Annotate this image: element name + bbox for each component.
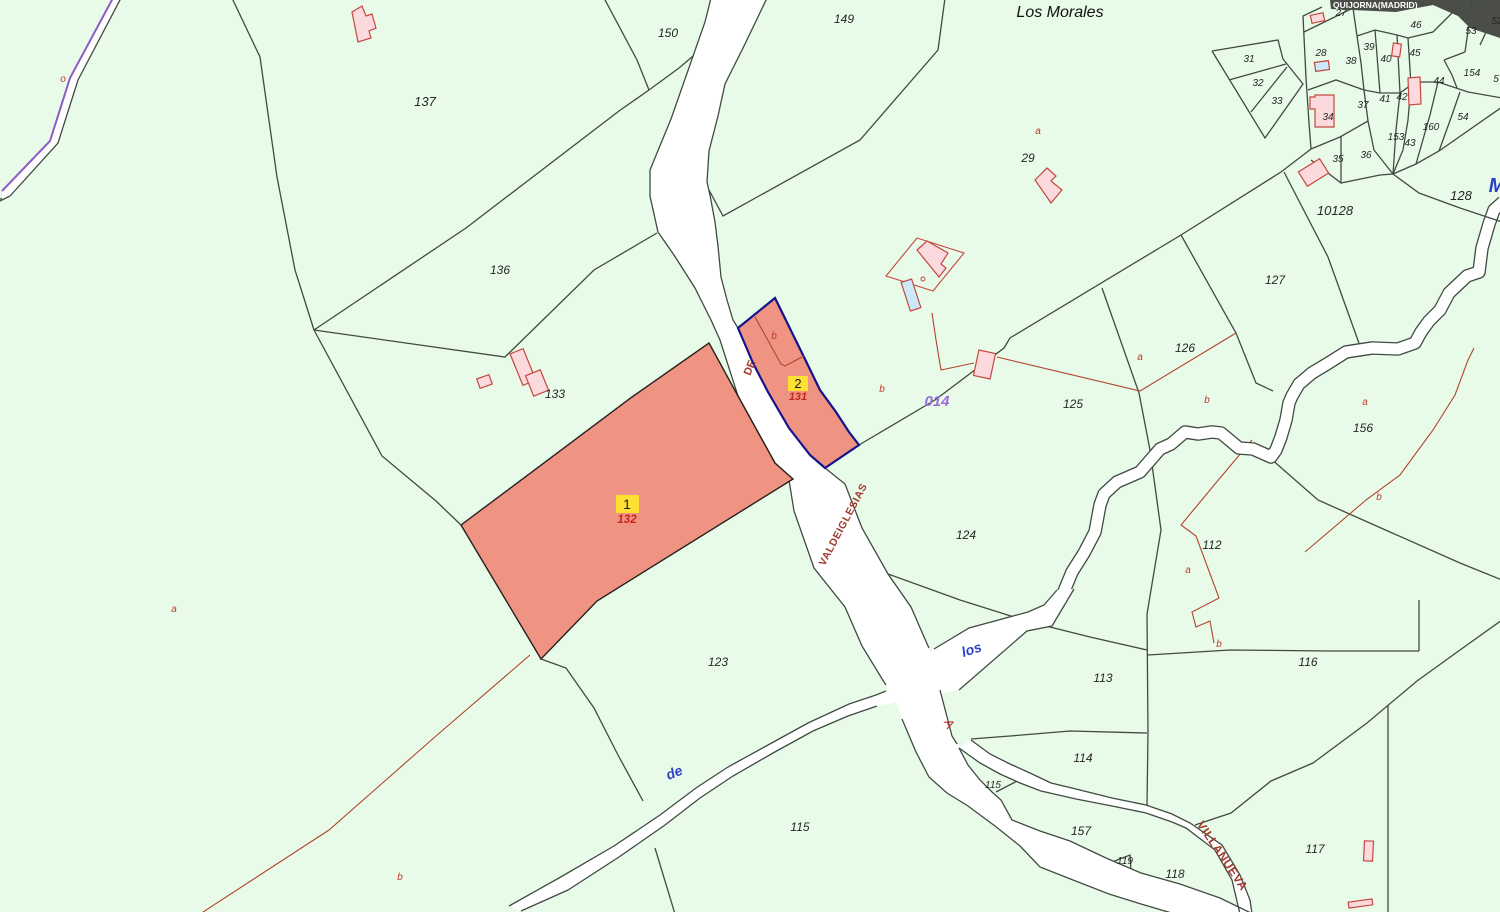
svg-text:115: 115	[985, 780, 1001, 791]
svg-text:36: 36	[1360, 150, 1372, 161]
svg-text:132: 132	[617, 514, 637, 526]
svg-text:27: 27	[1334, 8, 1347, 19]
svg-text:o: o	[60, 74, 66, 85]
svg-text:54: 54	[1457, 112, 1469, 123]
svg-text:a: a	[171, 604, 177, 615]
svg-text:119: 119	[1117, 856, 1133, 867]
svg-text:b: b	[879, 384, 885, 395]
svg-text:43: 43	[1404, 138, 1416, 149]
svg-text:a: a	[1137, 352, 1143, 363]
svg-text:154: 154	[1464, 68, 1481, 79]
svg-text:116: 116	[1298, 655, 1317, 669]
svg-text:113: 113	[1093, 671, 1112, 685]
svg-text:112: 112	[1202, 538, 1221, 552]
svg-text:44: 44	[1433, 76, 1445, 87]
svg-text:b: b	[1216, 639, 1222, 650]
svg-text:1: 1	[623, 496, 631, 512]
svg-text:10128: 10128	[1317, 203, 1354, 218]
svg-text:125: 125	[1063, 397, 1083, 411]
svg-text:2: 2	[794, 376, 801, 391]
svg-text:a: a	[1185, 565, 1191, 576]
svg-text:35: 35	[1332, 154, 1344, 165]
svg-text:131: 131	[789, 391, 807, 403]
svg-text:42: 42	[1396, 92, 1408, 103]
svg-text:123: 123	[708, 655, 728, 669]
svg-text:156: 156	[1353, 421, 1373, 435]
svg-text:29: 29	[1020, 151, 1035, 165]
svg-text:114: 114	[1073, 751, 1092, 765]
svg-text:136: 136	[490, 263, 510, 277]
svg-text:M: M	[1489, 175, 1500, 197]
svg-text:160: 160	[1423, 122, 1440, 133]
svg-text:40: 40	[1380, 54, 1392, 65]
svg-text:33: 33	[1271, 96, 1283, 107]
svg-text:b: b	[771, 331, 777, 342]
svg-text:53: 53	[1465, 26, 1477, 37]
svg-text:117: 117	[1305, 842, 1325, 856]
svg-text:b: b	[1204, 395, 1210, 406]
svg-text:a: a	[1035, 126, 1041, 137]
svg-text:32: 32	[1252, 78, 1264, 89]
svg-text:150: 150	[658, 26, 678, 40]
svg-text:014: 014	[924, 393, 950, 410]
svg-text:128: 128	[1450, 188, 1472, 203]
svg-text:5: 5	[1493, 74, 1499, 85]
svg-text:115: 115	[790, 820, 809, 834]
svg-text:149: 149	[834, 12, 854, 26]
svg-text:34: 34	[1322, 112, 1334, 123]
svg-text:b: b	[1376, 492, 1382, 503]
svg-text:41: 41	[1379, 94, 1390, 105]
svg-text:46: 46	[1410, 20, 1422, 31]
svg-text:124: 124	[956, 528, 976, 542]
svg-text:37: 37	[1357, 100, 1369, 111]
svg-text:45: 45	[1409, 48, 1421, 59]
svg-text:31: 31	[1243, 54, 1254, 65]
svg-text:Los Morales: Los Morales	[1016, 4, 1103, 21]
svg-text:38: 38	[1345, 56, 1357, 67]
svg-text:137: 137	[414, 94, 436, 109]
svg-text:39: 39	[1363, 42, 1375, 53]
svg-text:a: a	[1362, 397, 1368, 408]
svg-text:133: 133	[545, 387, 565, 401]
svg-text:b: b	[397, 872, 403, 883]
svg-text:127: 127	[1265, 273, 1286, 287]
svg-text:28: 28	[1314, 48, 1327, 59]
svg-text:118: 118	[1165, 867, 1184, 881]
svg-text:157: 157	[1071, 824, 1092, 838]
svg-text:153: 153	[1388, 132, 1405, 143]
svg-text:126: 126	[1175, 341, 1195, 355]
svg-text:52: 52	[1491, 16, 1500, 27]
